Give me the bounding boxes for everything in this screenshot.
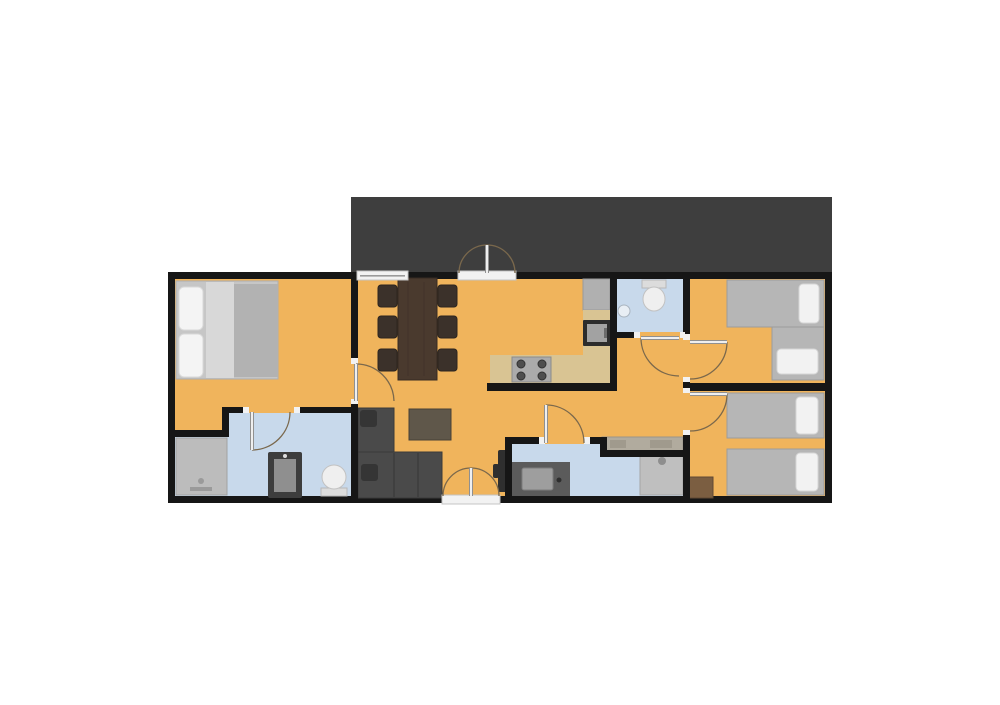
coffee-table [409, 409, 451, 440]
washing-machine-door [274, 459, 296, 492]
wall [487, 383, 617, 391]
dining-chair [378, 316, 397, 338]
dining-chair [438, 316, 457, 338]
shower-drain [198, 478, 204, 484]
door-jamb [634, 332, 640, 338]
door-jamb [683, 430, 690, 435]
wall [610, 272, 617, 390]
bed-pillow [777, 349, 818, 374]
bed-pillow [796, 397, 818, 434]
dining-table [398, 278, 437, 380]
stove-burner [517, 372, 525, 380]
shower [176, 438, 227, 495]
window-pane-line [360, 275, 405, 277]
stove-burner [517, 360, 525, 368]
door-jamb [683, 334, 690, 340]
terrace [351, 197, 832, 273]
hand-basin [618, 305, 630, 317]
floor-plan [0, 0, 1000, 705]
double-bed-pillow [179, 334, 203, 377]
oven-handle [604, 328, 607, 338]
shower-faucet [190, 487, 212, 491]
wall [683, 430, 690, 503]
shower-head [658, 457, 666, 465]
wall [690, 383, 832, 391]
wall [351, 400, 358, 503]
door-threshold [442, 495, 500, 504]
bed-pillow [799, 284, 819, 323]
wall [683, 272, 690, 340]
tv-stand [493, 464, 499, 478]
wall [222, 407, 229, 437]
stove-burner [538, 360, 546, 368]
dining-chair [378, 349, 397, 371]
door-jamb [294, 407, 300, 413]
nightstand [688, 477, 713, 498]
floor-plan-svg [0, 0, 1000, 705]
wall [600, 450, 690, 457]
bed-pillow [796, 453, 818, 491]
dining-chair [378, 285, 397, 307]
wall [351, 272, 358, 364]
washing-machine-knob [283, 454, 287, 458]
toilet-bowl [643, 287, 665, 311]
hall-counter-item [610, 440, 626, 448]
dining-chair [438, 285, 457, 307]
door-jamb [683, 388, 690, 393]
wall [294, 407, 358, 413]
double-bed-sheet [206, 282, 234, 378]
sofa-pillow [360, 410, 377, 427]
stove-burner [538, 372, 546, 380]
double-bed-pillow [179, 287, 203, 330]
vanity-faucet [557, 478, 562, 483]
wall [505, 437, 512, 503]
door-jamb [351, 358, 358, 364]
vanity-sink [522, 468, 553, 490]
dining-chair [438, 349, 457, 371]
kitchen-fridge [583, 279, 610, 310]
door-jamb [584, 437, 590, 444]
sofa-pillow [361, 464, 378, 481]
double-bed-blanket [234, 284, 278, 377]
door-jamb [243, 407, 249, 413]
toilet-bowl [322, 465, 346, 489]
wall [175, 430, 229, 437]
door-jamb [683, 377, 690, 382]
hall-counter-item [650, 440, 672, 448]
